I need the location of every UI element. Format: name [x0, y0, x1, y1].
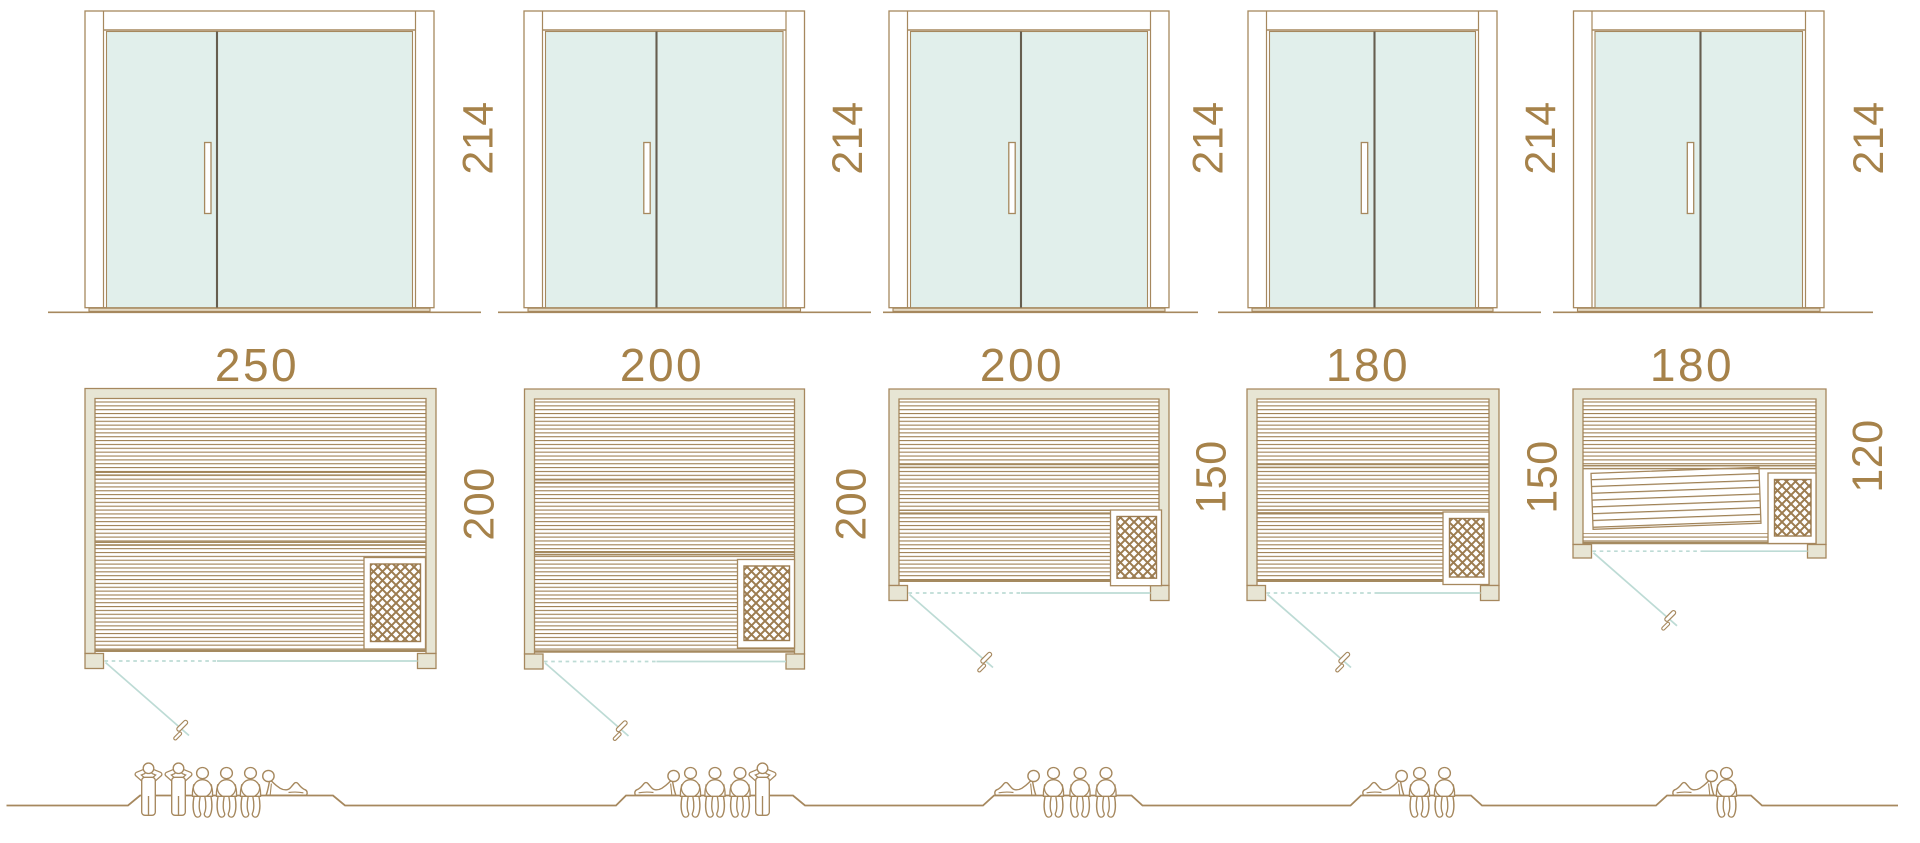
svg-text:150: 150: [1519, 440, 1567, 513]
svg-text:200: 200: [456, 467, 504, 540]
svg-text:214: 214: [1845, 101, 1893, 174]
svg-text:200: 200: [980, 339, 1064, 391]
svg-text:214: 214: [455, 101, 503, 174]
svg-text:150: 150: [1188, 440, 1236, 513]
svg-text:120: 120: [1844, 419, 1892, 492]
svg-text:214: 214: [1517, 101, 1565, 174]
svg-text:200: 200: [828, 467, 876, 540]
svg-text:180: 180: [1326, 339, 1410, 391]
svg-text:180: 180: [1650, 339, 1734, 391]
svg-text:250: 250: [215, 339, 299, 391]
svg-text:214: 214: [1185, 101, 1233, 174]
svg-text:214: 214: [824, 101, 872, 174]
svg-text:200: 200: [620, 339, 704, 391]
